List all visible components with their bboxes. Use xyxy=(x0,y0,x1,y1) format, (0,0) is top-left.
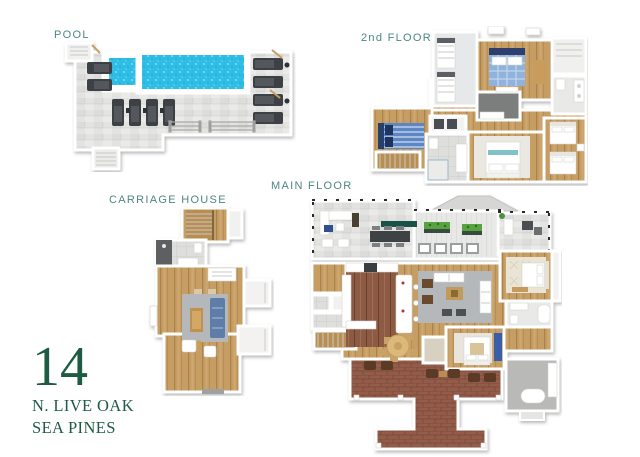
gable-roof xyxy=(430,196,518,211)
closet xyxy=(228,210,242,238)
living-furniture xyxy=(418,271,492,323)
bathroom xyxy=(156,240,206,266)
rear-hall xyxy=(504,327,552,351)
blue-bench xyxy=(494,333,502,361)
carriage-house-floorplan xyxy=(146,206,274,396)
entry-hall xyxy=(312,263,346,293)
lower-room xyxy=(164,334,240,392)
swimming-pool xyxy=(137,51,249,93)
address-number: 14 xyxy=(32,342,134,394)
pool-floorplan xyxy=(58,38,296,172)
garage xyxy=(506,359,558,420)
staircase xyxy=(182,208,228,242)
white-bed-center xyxy=(474,136,530,178)
alcove-upper xyxy=(244,280,270,306)
carriage-house-label: CARRIAGE HOUSE xyxy=(109,194,227,206)
side-door xyxy=(150,306,157,326)
staircase xyxy=(376,152,420,170)
floor-plan-sheet: POOL 2nd FLOOR CARRIAGE HOUSE MAIN FLOOR… xyxy=(0,0,640,457)
main-floor-floorplan xyxy=(306,191,562,457)
entry-mat xyxy=(202,389,224,394)
mudroom xyxy=(312,313,346,329)
blue-striped-bed xyxy=(378,123,424,149)
guest-bedroom-furniture xyxy=(454,333,502,365)
property-address: 14 N. LIVE OAK SEA PINES xyxy=(32,342,134,438)
powder-room xyxy=(312,295,330,311)
second-floor-floorplan xyxy=(368,26,588,186)
address-street: N. LIVE OAK xyxy=(32,396,134,416)
address-community: SEA PINES xyxy=(32,418,134,438)
